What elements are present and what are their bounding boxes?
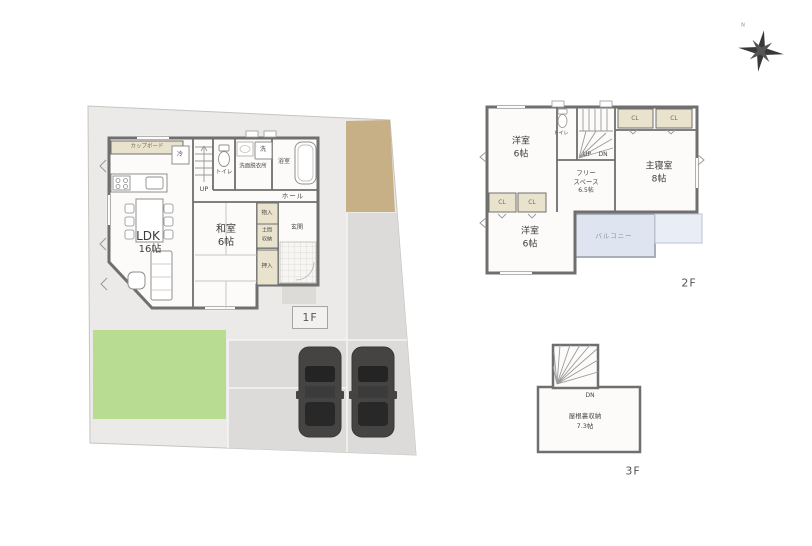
sofa — [151, 251, 172, 300]
stairs-up-label-2f: UP — [583, 152, 591, 158]
cupboard-label: カップボード — [130, 144, 163, 150]
vanity — [237, 142, 253, 156]
bathtub-icon — [295, 142, 316, 184]
compass-icon — [735, 27, 786, 75]
toilet-icon-2f — [558, 109, 567, 128]
master-size-label: 8帖 — [652, 176, 667, 185]
free-space-label-line2: スペース — [573, 179, 598, 186]
compass-north-label: N — [741, 24, 745, 29]
washroom-label: 洗面脱衣所 — [239, 164, 267, 170]
kitchen-counter — [111, 174, 167, 192]
car-1 — [296, 347, 344, 437]
oshiire-label: 押入 — [261, 264, 272, 270]
stairs-down-label-3f: DN — [585, 393, 594, 399]
closet-label-4: CL — [528, 200, 536, 206]
stairs-down-label-2f: DN — [598, 152, 607, 158]
doma-label-line2: 収納 — [262, 238, 272, 243]
floor2-label: 2F — [681, 278, 696, 289]
ldk-size-label: 16帖 — [139, 245, 162, 255]
hall-label: ホール — [282, 193, 305, 200]
closet-label-1: CL — [631, 116, 639, 122]
floorplan-canvas: カップボード 冷 トイレ 洗面脱衣所 洗 浴室 UP ホール 物入 土間 収納 … — [0, 0, 812, 546]
lawn — [93, 330, 226, 419]
storage-label: 物入 — [261, 211, 272, 217]
entrance-tiles — [280, 242, 316, 283]
balcony-extension — [655, 214, 702, 243]
master-name-label: 主寝室 — [645, 163, 672, 172]
floor1-label: 1F — [292, 306, 328, 329]
toilet-label-2f: トイレ — [553, 132, 568, 137]
living-table — [128, 272, 145, 289]
entrance-label: 玄関 — [291, 225, 303, 231]
washer-label: 洗 — [260, 147, 266, 153]
bedroom1-name-label: 洋室 — [512, 138, 530, 147]
attic-name-label: 屋根裏収納 — [569, 413, 602, 420]
bedroom1-size-label: 6帖 — [514, 151, 529, 160]
attic-size-label: 7.3帖 — [577, 423, 594, 430]
closet-label-3: CL — [498, 200, 506, 206]
balcony-label: バルコニー — [595, 233, 632, 240]
toilet-label-1f: トイレ — [216, 170, 233, 176]
bedroom2-name-label: 洋室 — [521, 228, 539, 237]
bath-label: 浴室 — [278, 159, 290, 165]
doma-label-line1: 土間 — [262, 229, 272, 234]
fridge-label: 冷 — [177, 152, 183, 158]
floorplan-drawing — [0, 0, 812, 546]
washitsu-name-label: 和室 — [216, 225, 236, 235]
floor3-label: 3F — [625, 466, 640, 477]
porch — [282, 285, 316, 304]
car-2 — [349, 347, 397, 437]
ldk-name-label: LDK — [136, 230, 160, 242]
closet-label-2: CL — [670, 116, 678, 122]
bedroom2-size-label: 6帖 — [523, 241, 538, 250]
free-space-size-label: 6.5帖 — [578, 188, 594, 194]
washitsu-size-label: 6帖 — [218, 238, 234, 248]
approach-area — [346, 120, 395, 212]
toilet-icon-1f — [219, 145, 230, 167]
free-space-label-line1: フリー — [576, 170, 596, 177]
stairs-up-label-1f: UP — [200, 186, 209, 193]
